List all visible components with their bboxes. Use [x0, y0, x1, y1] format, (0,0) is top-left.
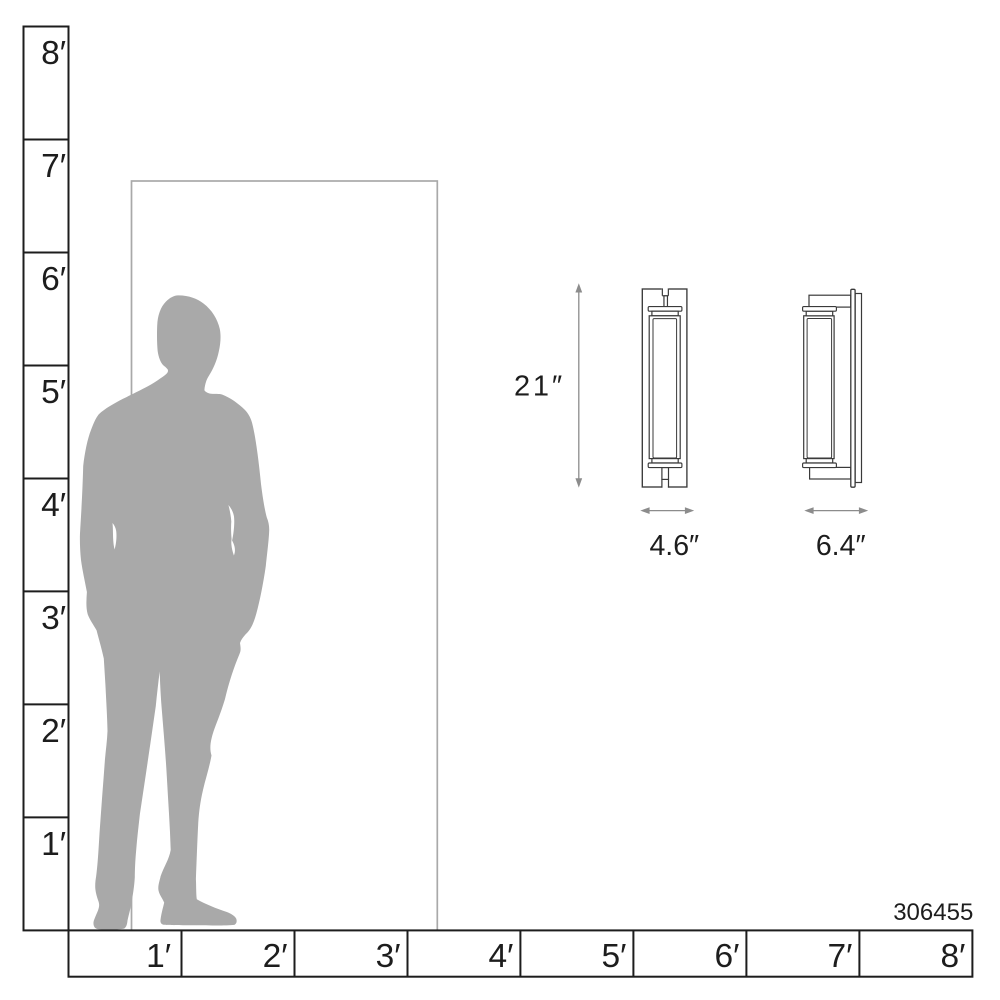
svg-text:6′: 6′ — [714, 938, 739, 975]
svg-text:6′: 6′ — [41, 261, 66, 298]
svg-text:7′: 7′ — [41, 148, 66, 185]
svg-text:21″: 21″ — [514, 371, 565, 403]
svg-text:2′: 2′ — [263, 938, 288, 975]
svg-text:1′: 1′ — [146, 938, 171, 975]
svg-text:8′: 8′ — [940, 938, 965, 975]
svg-text:6.4″: 6.4″ — [816, 530, 866, 562]
svg-text:5′: 5′ — [601, 938, 626, 975]
svg-text:3′: 3′ — [376, 938, 401, 975]
svg-text:7′: 7′ — [827, 938, 852, 975]
svg-text:5′: 5′ — [41, 374, 66, 411]
svg-text:2′: 2′ — [41, 713, 66, 750]
svg-text:3′: 3′ — [41, 600, 66, 637]
svg-text:4′: 4′ — [488, 938, 513, 975]
svg-text:1′: 1′ — [41, 826, 66, 863]
svg-text:4.6″: 4.6″ — [649, 530, 699, 562]
svg-text:4′: 4′ — [41, 487, 66, 524]
svg-text:8′: 8′ — [41, 35, 66, 72]
svg-text:306455: 306455 — [893, 899, 973, 926]
